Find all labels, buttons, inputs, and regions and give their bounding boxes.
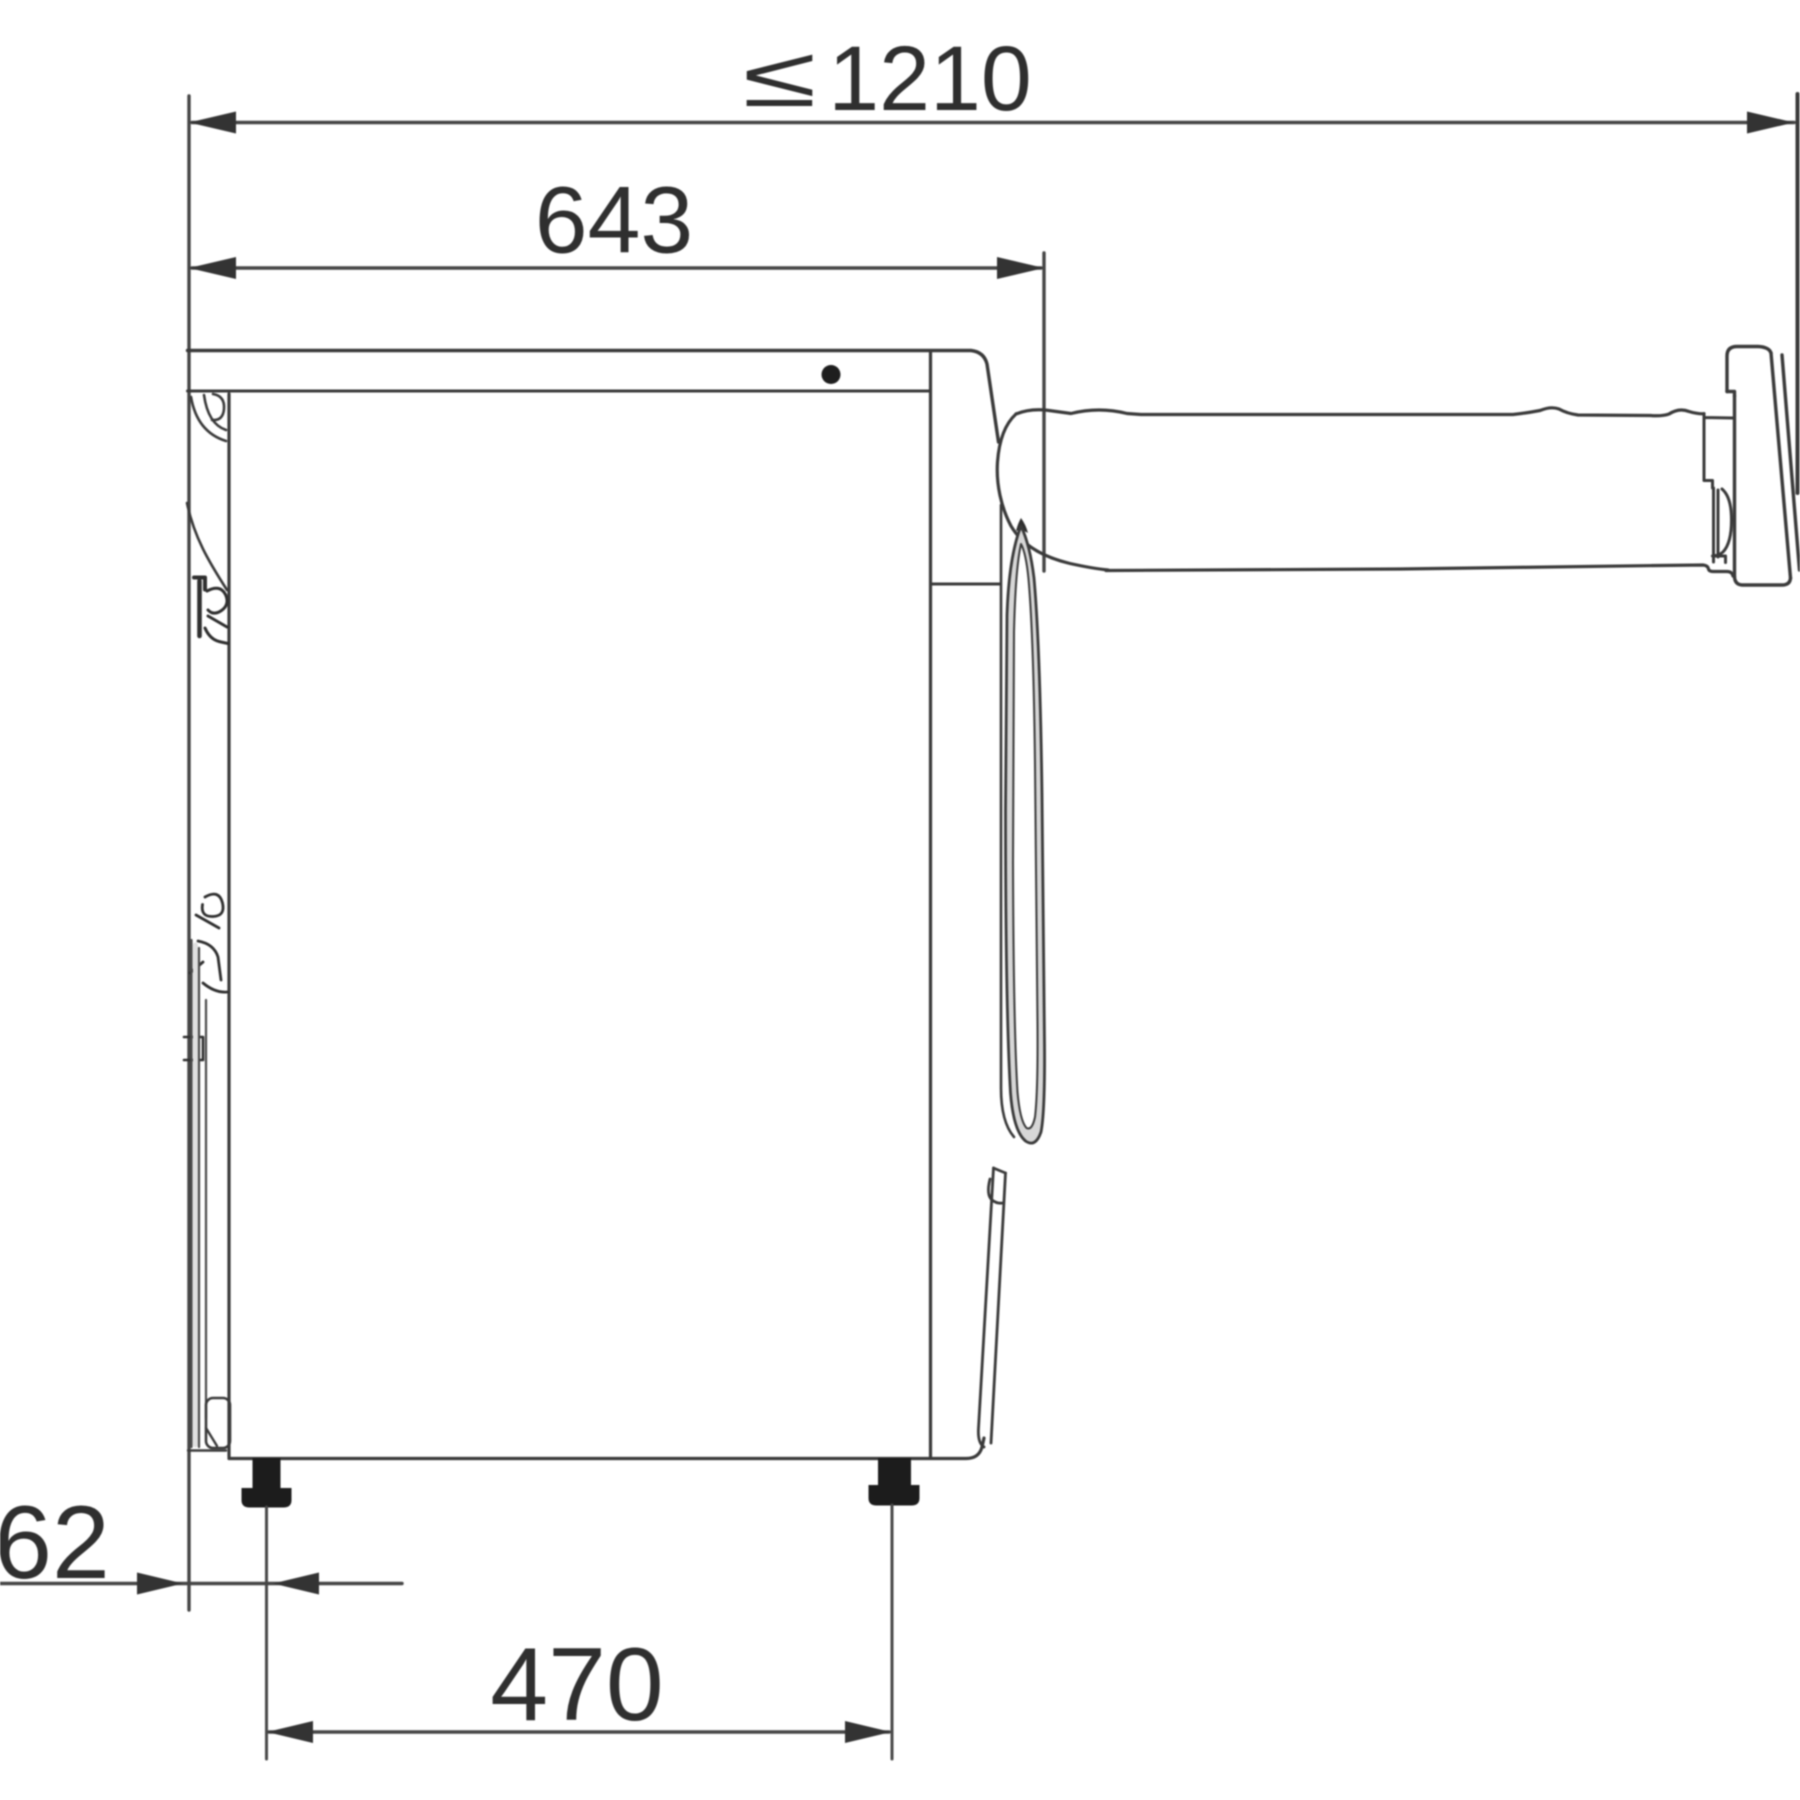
svg-text:643: 643: [535, 168, 694, 274]
svg-text:1210: 1210: [828, 28, 1032, 130]
svg-text:470: 470: [490, 1627, 664, 1743]
svg-text:≤: ≤: [743, 29, 817, 124]
